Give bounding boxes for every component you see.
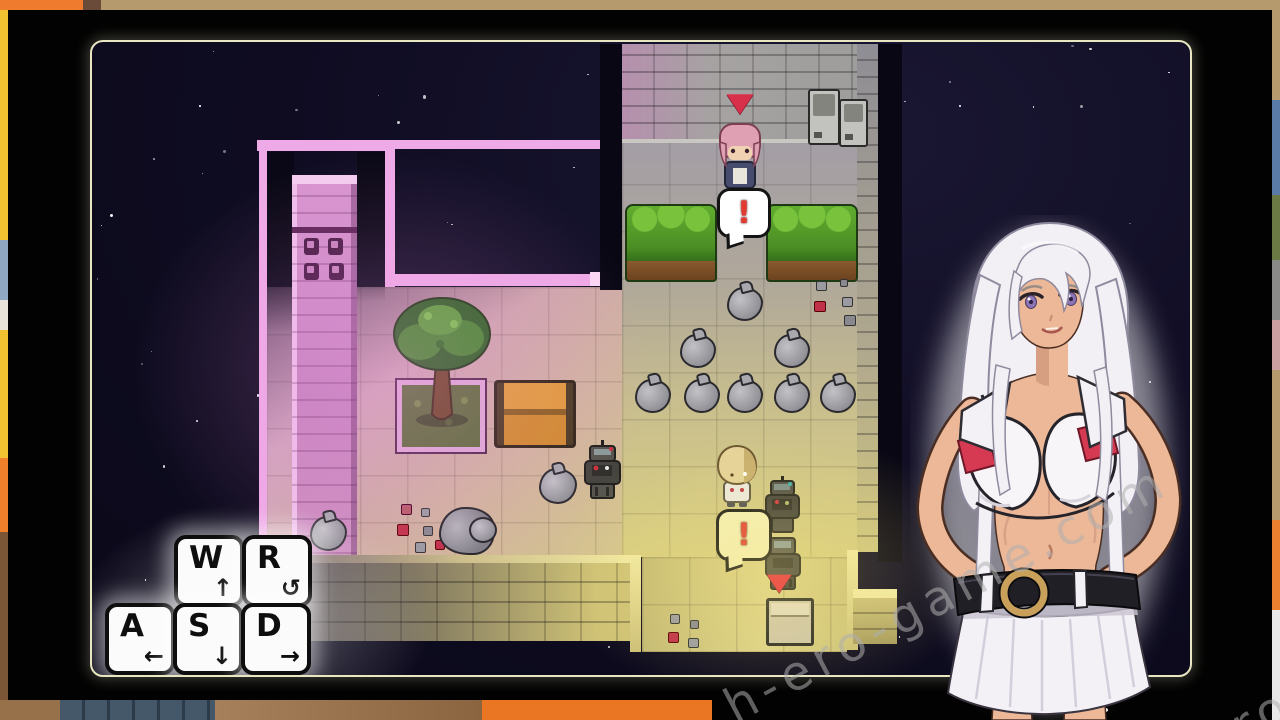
- void-gap-right: [357, 152, 385, 302]
- pillar-dark-line: [292, 227, 357, 233]
- bg-strip-top-tan: [83, 0, 1280, 10]
- rock-pile: [439, 507, 495, 555]
- robot-marker-arrow-icon: ▼: [767, 570, 792, 594]
- bottom-corridor-left-wall: [630, 555, 641, 652]
- vending-machine-icon: [808, 89, 840, 145]
- corridor-left-dark-edge: [600, 44, 622, 290]
- bg-strip-bottom-wood-left: [0, 700, 60, 720]
- key-label: S: [188, 608, 210, 644]
- wall-line-hole-left: [385, 140, 395, 287]
- south-wall-face: [258, 563, 634, 641]
- tree-sprite: [388, 292, 496, 432]
- arrow-left-icon: ←: [144, 642, 164, 670]
- npc-pink-hair: [717, 120, 763, 196]
- corridor-right-dark-edge: [878, 44, 902, 562]
- rotate-icon: ↺: [281, 574, 301, 602]
- bg-strip-left: [0, 10, 8, 700]
- player-alert-bubble: !: [716, 509, 772, 561]
- footprint-mark: [304, 263, 319, 280]
- key-label: R: [257, 540, 281, 576]
- screenshot-stage: ▼ !: [0, 0, 1280, 720]
- void-gap-left: [266, 152, 294, 332]
- key-label: D: [256, 608, 282, 644]
- hedge-bush: [766, 204, 858, 282]
- key-hint-r[interactable]: R ↺: [242, 535, 312, 607]
- bg-strip-top-orange: [0, 0, 83, 10]
- vending-machine-icon: [839, 99, 868, 147]
- key-label: W: [189, 540, 223, 576]
- player-alert-text: !: [737, 517, 751, 553]
- bg-strip-bottom-laptop: [60, 700, 215, 720]
- debris-cluster: [814, 279, 860, 329]
- key-hint-s[interactable]: S ↓: [173, 603, 243, 675]
- arrow-up-icon: ↑: [213, 574, 233, 602]
- player-blond: [714, 444, 760, 510]
- key-hint-d[interactable]: D →: [241, 603, 311, 675]
- key-hint-w[interactable]: W ↑: [174, 535, 244, 607]
- debris-cluster: [668, 614, 710, 652]
- wall-line-top-left: [257, 140, 387, 151]
- footprint-mark: [329, 263, 344, 280]
- bench-sprite: [494, 380, 576, 448]
- wall-line-left-boundary: [259, 140, 267, 562]
- key-label: A: [120, 608, 144, 644]
- wall-line-hole-top: [395, 140, 600, 149]
- npc-target-arrow-icon: ▼: [727, 90, 754, 116]
- footprint-mark: [304, 238, 319, 255]
- south-wall-edge: [258, 555, 634, 563]
- hedge-bush: [625, 204, 717, 282]
- footprint-mark: [328, 238, 343, 255]
- bg-strip-bottom-desk: [215, 700, 482, 720]
- npc-alert-text: !: [737, 195, 751, 231]
- robot-sprite: [580, 440, 626, 504]
- bg-strip-right: [1272, 10, 1280, 720]
- bg-strip-bottom-orange: [482, 700, 712, 720]
- arrow-right-icon: →: [280, 642, 300, 670]
- npc-alert-bubble: !: [717, 188, 771, 238]
- wall-line-hole-bottom: [385, 274, 602, 286]
- arrow-down-icon: ↓: [212, 642, 232, 670]
- key-hint-a[interactable]: A ←: [105, 603, 175, 675]
- skirt: [948, 607, 1150, 714]
